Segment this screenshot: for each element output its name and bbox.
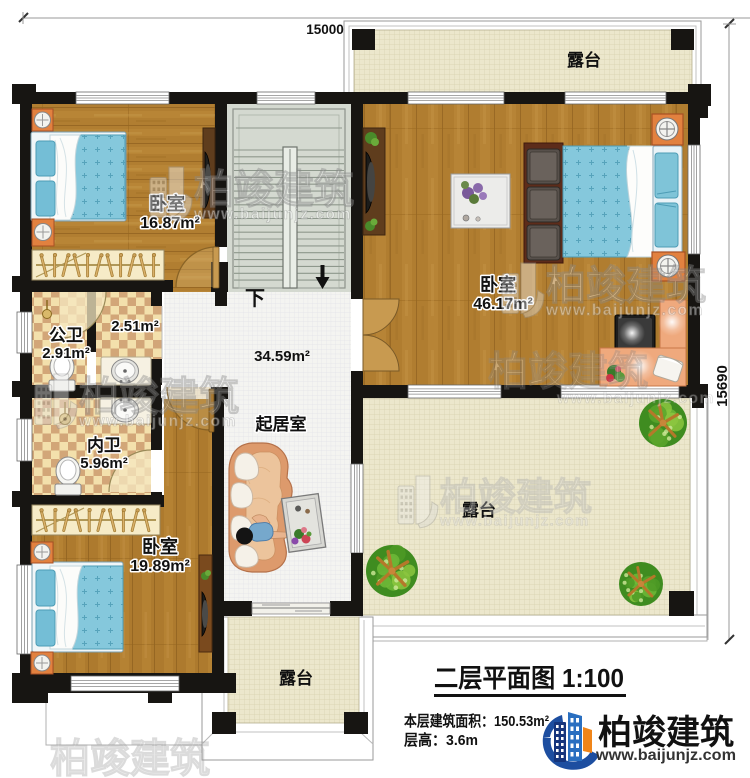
- svg-text:柏竣建筑: 柏竣建筑: [488, 350, 648, 394]
- svg-text:卧室: 卧室: [142, 536, 178, 557]
- svg-text:www.baijunjz.com: www.baijunjz.com: [78, 413, 237, 430]
- svg-text:层高：3.6m: 层高：3.6m: [404, 731, 478, 749]
- svg-text:本层建筑面积：150.53m²: 本层建筑面积：150.53m²: [404, 712, 549, 730]
- svg-text:15690: 15690: [714, 365, 731, 407]
- svg-text:2.91m²: 2.91m²: [42, 345, 90, 362]
- svg-text:露台: 露台: [279, 668, 313, 688]
- svg-text:www.baijunjz.com: www.baijunjz.com: [193, 206, 352, 223]
- svg-text:19.89m²: 19.89m²: [130, 558, 190, 575]
- svg-text:露台: 露台: [567, 50, 601, 70]
- svg-text:www.baijunjz.com: www.baijunjz.com: [556, 390, 715, 407]
- svg-text:15000: 15000: [306, 22, 344, 37]
- svg-text:2.51m²: 2.51m²: [111, 318, 159, 335]
- svg-text:公卫: 公卫: [49, 326, 83, 345]
- svg-text:起居室: 起居室: [255, 414, 307, 434]
- svg-text:www.baijunjz.com: www.baijunjz.com: [595, 747, 736, 764]
- svg-text:5.96m²: 5.96m²: [80, 455, 128, 472]
- svg-text:内卫: 内卫: [87, 435, 121, 455]
- svg-text:二层平面图 1:100: 二层平面图 1:100: [434, 665, 624, 693]
- svg-text:下: 下: [245, 288, 265, 310]
- svg-text:34.59m²: 34.59m²: [254, 348, 310, 365]
- svg-text:www.baijunjz.com: www.baijunjz.com: [439, 513, 590, 529]
- svg-text:柏竣建筑: 柏竣建筑: [50, 737, 210, 778]
- svg-text:www.baijunjz.com: www.baijunjz.com: [545, 302, 704, 319]
